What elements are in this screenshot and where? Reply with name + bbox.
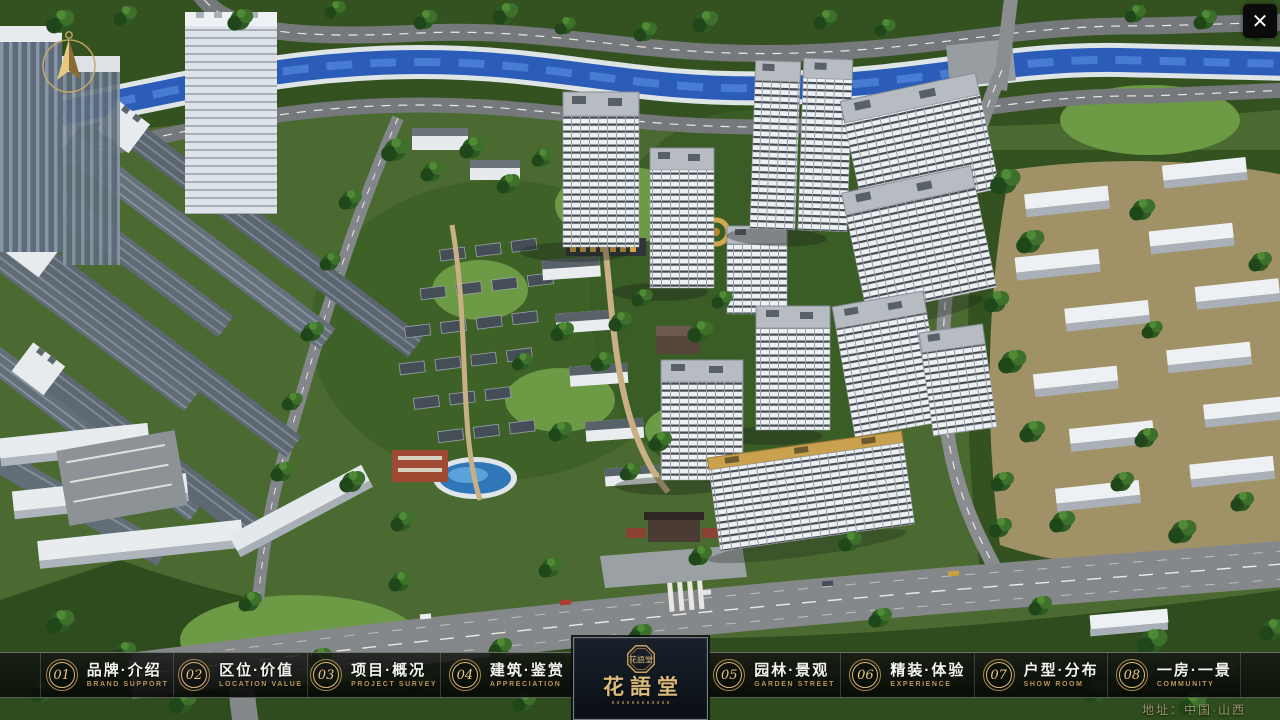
svg-text:花語堂: 花語堂 (629, 655, 653, 665)
nav-number-badge: 01 (46, 659, 78, 691)
nav-labels: 一房·一景 COMMUNITY (1157, 662, 1232, 688)
nav-labels: 建筑·鉴赏 APPRECIATION (490, 662, 565, 688)
aerial-site-render (0, 0, 1280, 720)
close-icon: ✕ (1252, 9, 1269, 34)
nav-number: 05 (716, 662, 742, 688)
nav-subtitle: EXPERIENCE (890, 681, 951, 688)
nav-number: 06 (852, 662, 878, 688)
nav-subtitle: APPRECIATION (490, 681, 562, 688)
nav-labels: 项目·概况 PROJECT SURVEY (351, 662, 437, 688)
nav-subtitle: GARDEN STREET (754, 681, 835, 688)
nav-number: 02 (181, 662, 207, 688)
nav-number-badge: 04 (449, 659, 481, 691)
seal-emblem-icon: 花語堂 (626, 644, 656, 674)
nav-title: 区位·价值 (219, 662, 294, 679)
nav-number: 08 (1119, 662, 1145, 688)
nav-number-badge: 07 (983, 659, 1015, 691)
nav-item-01[interactable]: 01 品牌·介绍 BRAND SUPPORT (41, 653, 174, 697)
nav-subtitle: PROJECT SURVEY (351, 681, 437, 688)
nav-number: 07 (986, 662, 1012, 688)
nav-number-badge: 06 (849, 659, 881, 691)
nav-labels: 户型·分布 SHOW ROOM (1024, 662, 1099, 688)
nav-title: 品牌·介绍 (87, 662, 162, 679)
nav-labels: 精装·体验 EXPERIENCE (890, 662, 965, 688)
nav-subtitle: SHOW ROOM (1024, 681, 1084, 688)
nav-item-02[interactable]: 02 区位·价值 LOCATION VALUE (174, 653, 307, 697)
nav-item-08[interactable]: 08 一房·一景 COMMUNITY (1108, 653, 1241, 697)
logo-tagline-rule (612, 701, 670, 704)
nav-title: 一房·一景 (1157, 662, 1232, 679)
nav-labels: 区位·价值 LOCATION VALUE (219, 662, 303, 688)
nav-item-05[interactable]: 05 园林·景观 GARDEN STREET (708, 653, 841, 697)
nav-number-badge: 08 (1116, 659, 1148, 691)
nav-item-06[interactable]: 06 精装·体验 EXPERIENCE (841, 653, 974, 697)
nav-number: 04 (452, 662, 478, 688)
close-button[interactable]: ✕ (1243, 4, 1277, 38)
nav-title: 园林·景观 (754, 662, 829, 679)
nav-subtitle: LOCATION VALUE (219, 681, 303, 688)
project-address: 地址：中国·山西 (1142, 701, 1246, 718)
presentation-window: ✕ 01 品牌·介绍 BRAND SUPPORT 02 区位·价值 LOCATI… (0, 0, 1280, 720)
nav-title: 户型·分布 (1024, 662, 1099, 679)
nav-item-04[interactable]: 04 建筑·鉴赏 APPRECIATION (441, 653, 574, 697)
nav-title: 建筑·鉴赏 (490, 662, 565, 679)
project-logo-title: 花語堂 (597, 676, 684, 698)
project-logo-panel[interactable]: 花語堂 花語堂 (573, 637, 708, 720)
nav-number: 01 (49, 662, 75, 688)
nav-subtitle: COMMUNITY (1157, 681, 1215, 688)
nav-number-badge: 03 (310, 659, 342, 691)
nav-labels: 品牌·介绍 BRAND SUPPORT (87, 662, 169, 688)
nav-zone-right: 05 园林·景观 GARDEN STREET 06 精装·体验 EXPERIEN… (707, 653, 1241, 697)
nav-subtitle: BRAND SUPPORT (87, 681, 169, 688)
nav-title: 项目·概况 (351, 662, 426, 679)
nav-number-badge: 05 (713, 659, 745, 691)
nav-title: 精装·体验 (890, 662, 965, 679)
nav-zone-left: 01 品牌·介绍 BRAND SUPPORT 02 区位·价值 LOCATION… (40, 653, 574, 697)
compass-north-indicator (36, 28, 102, 98)
nav-item-03[interactable]: 03 项目·概况 PROJECT SURVEY (308, 653, 441, 697)
nav-item-07[interactable]: 07 户型·分布 SHOW ROOM (975, 653, 1108, 697)
nav-labels: 园林·景观 GARDEN STREET (754, 662, 835, 688)
nav-number-badge: 02 (178, 659, 210, 691)
nav-number: 03 (313, 662, 339, 688)
